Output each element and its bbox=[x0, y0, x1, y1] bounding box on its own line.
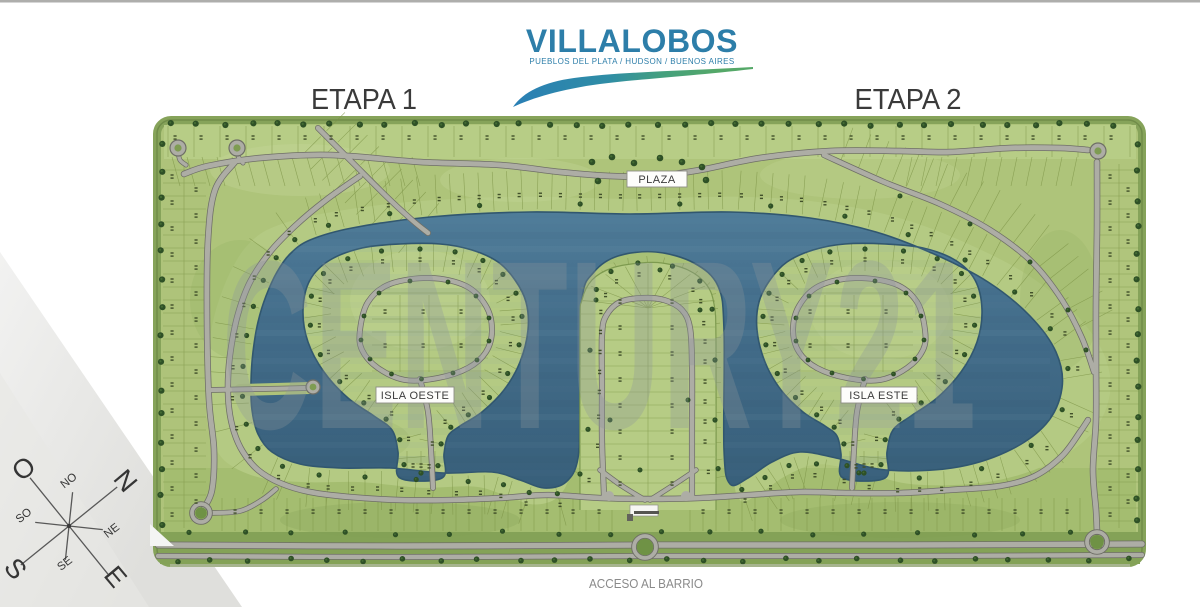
svg-text:ACCESO AL BARRIO: ACCESO AL BARRIO bbox=[589, 577, 703, 591]
svg-text:ISLA ESTE: ISLA ESTE bbox=[849, 390, 909, 402]
svg-text:CENTURY21: CENTURY21 bbox=[222, 211, 978, 480]
svg-text:PLAZA: PLAZA bbox=[638, 174, 676, 186]
svg-text:ETAPA 1: ETAPA 1 bbox=[311, 84, 417, 116]
svg-text:ETAPA 2: ETAPA 2 bbox=[855, 84, 962, 116]
svg-text:PUEBLOS DEL PLATA / HUDSON / B: PUEBLOS DEL PLATA / HUDSON / BUENOS AIRE… bbox=[529, 57, 734, 66]
svg-text:VILLALOBOS: VILLALOBOS bbox=[526, 23, 738, 59]
svg-text:ISLA OESTE: ISLA OESTE bbox=[381, 390, 450, 402]
